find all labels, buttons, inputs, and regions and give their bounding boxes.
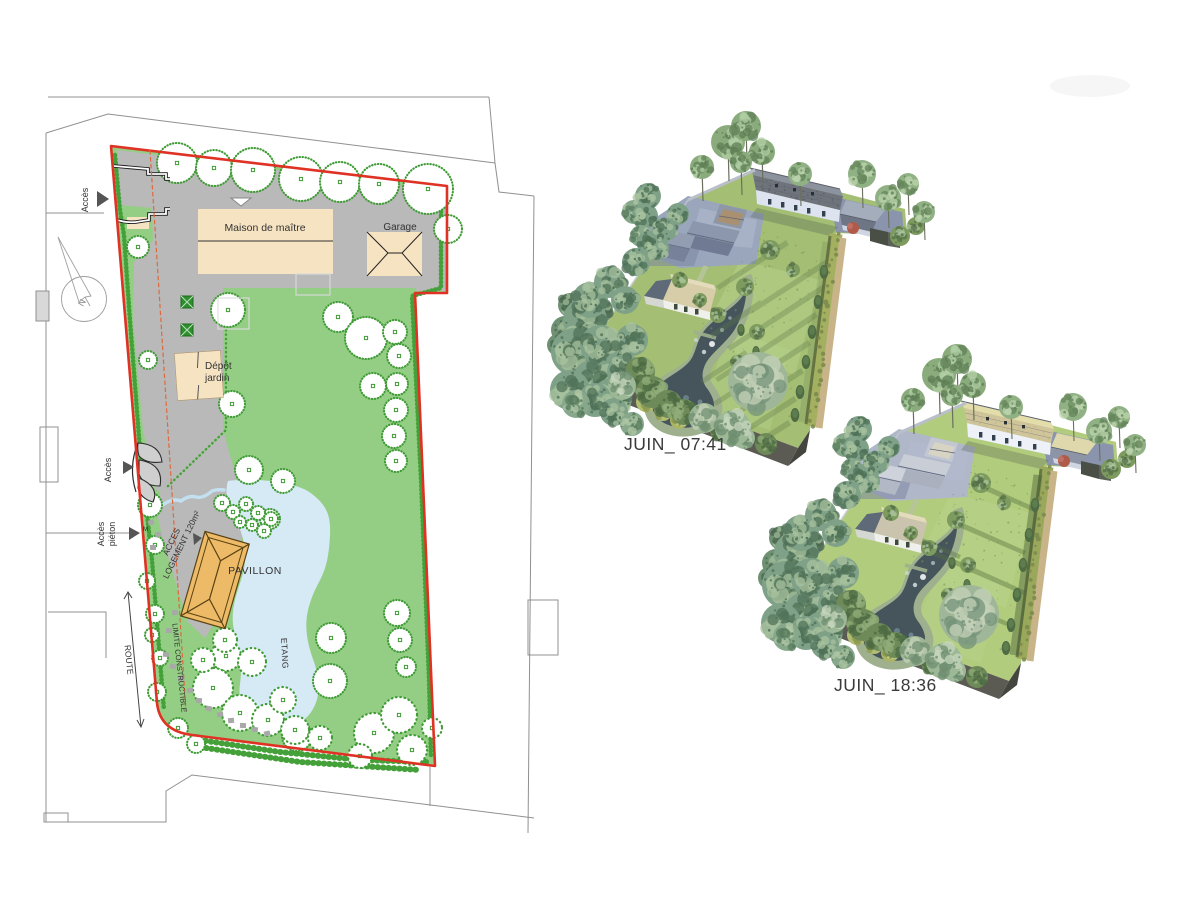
svg-text:piéton: piéton [107, 522, 117, 547]
svg-text:ETANG: ETANG [279, 638, 291, 670]
svg-text:Garage: Garage [383, 222, 417, 233]
svg-text:Accès: Accès [103, 457, 113, 482]
svg-text:JUIN_ 07:41: JUIN_ 07:41 [624, 434, 727, 455]
svg-text:M: M [143, 527, 148, 533]
svg-text:Dépôt: Dépôt [205, 361, 232, 372]
svg-text:JUIN_ 18:36: JUIN_ 18:36 [834, 675, 937, 696]
svg-text:PAVILLON: PAVILLON [228, 565, 282, 577]
svg-text:Maison de maître: Maison de maître [224, 222, 305, 234]
svg-text:Accès: Accès [96, 521, 106, 546]
svg-text:Accès: Accès [80, 187, 90, 212]
svg-text:jardin: jardin [204, 373, 229, 384]
